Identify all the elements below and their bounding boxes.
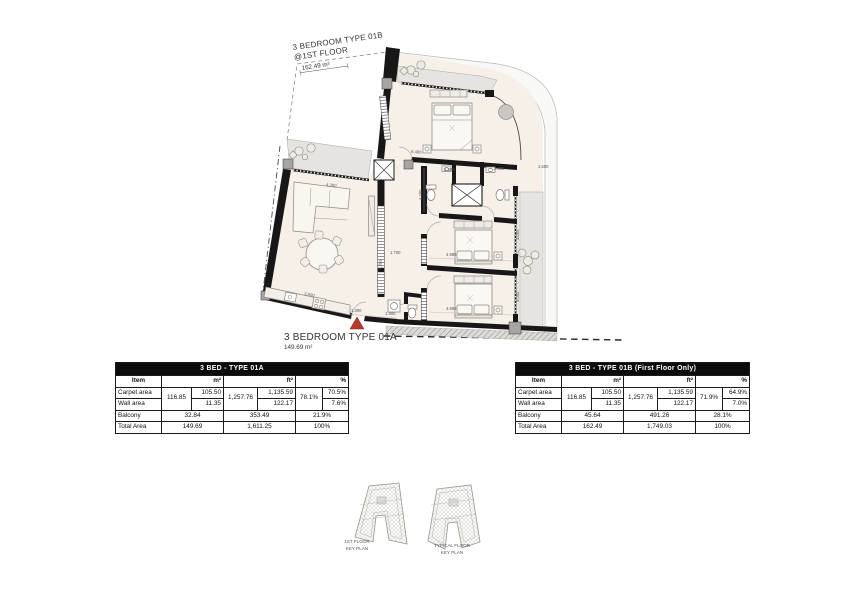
table-a-balcony-label: Balcony [116,410,162,422]
floor-plan-drawing: 6.400 2.500 2.400 1.500 4.200 1.700 4.98… [0,0,848,600]
table-b-carpet-pct: 64.9% [723,387,750,399]
key-plan-typical: TYPICAL FLOOR KEY PLAN [428,485,480,555]
master-dresser [430,90,467,97]
table-a-balcony-m2: 32.84 [162,410,224,422]
key-plan-first: 1ST FLOOR KEY PLAN [344,483,407,551]
key-plan-first-label-2: KEY PLAN [346,546,368,551]
dim-label: 1.385 [377,259,383,271]
unit-01a-area: 149.69 m² [284,344,312,351]
table-a-balcony-ft2: 353.49 [224,410,296,422]
dim-label: 1.300 [351,308,362,313]
table-b-carpet-label: Carpet area [516,387,562,399]
table-b-total-pct: 100% [696,422,750,434]
table-a-balcony-pct: 21.9% [296,410,349,422]
table-a-carpet-pct: 70.5% [323,387,349,399]
table-b-total-label: Total Area [516,422,562,434]
table-a-header-ft2: ft² [224,376,296,388]
table-b-header-m2: m² [562,376,624,388]
unit-01a-name: 3 BEDROOM TYPE 01A [284,332,397,343]
table-a-total-pct: 100% [296,422,349,434]
table-b-total-ft2: 1,749.03 [624,422,696,434]
table-b-header-pct: % [696,376,750,388]
table-a-pct-group: 78.1% [296,387,323,410]
table-a-carpet-ft2: 1,135.59 [258,387,296,399]
table-a-title: 3 BED - TYPE 01A [116,363,349,376]
table-a-header-m2: m² [162,376,224,388]
table-a-header-item: Item [116,376,162,388]
table-a-ft2-group: 1,257.76 [224,387,258,410]
key-plan-first-label-1: 1ST FLOOR [344,539,370,544]
dim-label: 1.700 [390,250,401,255]
dim-label: 1.900 [385,311,396,316]
dim-label: 4.985 [446,252,457,257]
table-b-pct-group: 71.9% [696,387,723,410]
table-a-carpet-label: Carpet area [116,387,162,399]
table-a-m2-group: 116.85 [162,387,192,410]
table-a-total-label: Total Area [116,422,162,434]
table-a-wall-m2: 11.35 [192,399,224,411]
table-b-carpet-ft2: 1,135.59 [658,387,696,399]
dim-label: 3.005 [515,229,520,240]
table-a-wall-label: Wall area [116,399,162,411]
table-b-header-item: Item [516,376,562,388]
table-b-ft2-group: 1,257.76 [624,387,658,410]
table-a-wall-ft2: 122.17 [258,399,296,411]
table-b-wall-ft2: 122.17 [658,399,696,411]
dim-label: 6.400 [411,149,422,155]
bedroom3-wardrobe [454,276,492,283]
key-plan-typical-label-1: TYPICAL FLOOR [434,543,471,548]
table-b-balcony-pct: 28.1% [696,410,750,422]
kitchen-sink [284,292,296,302]
bedroom2-wardrobe [454,221,492,228]
table-a-wall-pct: 7.6% [323,399,349,411]
table-b-carpet-m2: 105.50 [592,387,624,399]
dim-label: 4.200 [418,189,423,200]
table-b-balcony-m2: 45.64 [562,410,624,422]
table-a-total-m2: 149.69 [162,422,224,434]
table-b-wall-pct: 7.0% [723,399,750,411]
dim-label: 1.500 [538,164,549,169]
table-a-carpet-m2: 105.50 [192,387,224,399]
dim-label: 5.005 [515,291,520,302]
table-b-wall-m2: 11.35 [592,399,624,411]
area-table-type-01a: 3 BED - TYPE 01A Item m² ft² % Carpet ar… [115,362,349,434]
table-b-balcony-ft2: 491.26 [624,410,696,422]
table-b-balcony-label: Balcony [516,410,562,422]
area-table-type-01b: 3 BED - TYPE 01B (First Floor Only) Item… [515,362,750,434]
table-b-header-ft2: ft² [624,376,696,388]
label-type-01b: 3 BEDROOM TYPE 01B @1ST FLOOR 162.49 m² [292,30,387,75]
dim-label: 2.500 [444,167,455,172]
dim-label: 4.965 [446,306,457,311]
toilet-bath2 [496,190,504,201]
plant-circle [499,105,514,120]
table-a-header-pct: % [296,376,349,388]
table-b-title: 3 BED - TYPE 01B (First Floor Only) [516,363,750,376]
table-b-wall-label: Wall area [516,399,562,411]
key-plan-typical-label-2: KEY PLAN [441,550,463,555]
table-b-m2-group: 116.85 [562,387,592,410]
entry-marker-triangle [350,317,364,329]
toilet-bath1 [427,190,435,201]
stove [312,297,326,310]
dim-label: 2.400 [494,166,505,171]
table-a-total-ft2: 1,611.25 [224,422,296,434]
table-b-total-m2: 162.49 [562,422,624,434]
floorplan-sheet: 6.400 2.500 2.400 1.500 4.200 1.700 4.98… [0,0,848,600]
toilet-wc [408,308,416,318]
